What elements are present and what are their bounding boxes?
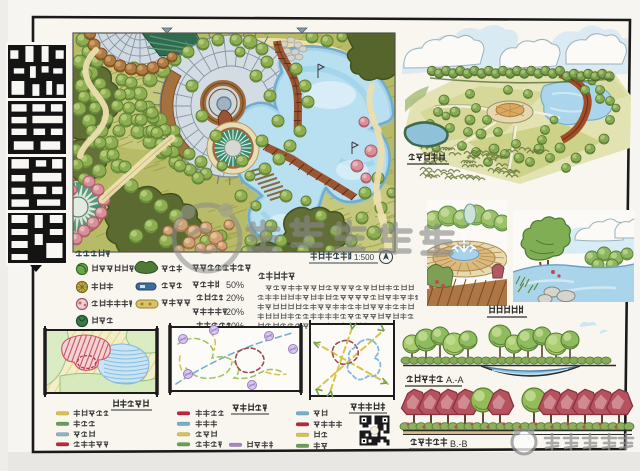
svg-text:50%: 50% [226,280,244,290]
svg-text:1:500: 1:500 [354,253,375,262]
svg-text:A.-A: A.-A [446,375,464,385]
svg-text:B.-B: B.-B [450,439,468,449]
svg-text:20%: 20% [226,293,244,303]
svg-text:20%: 20% [226,307,244,317]
